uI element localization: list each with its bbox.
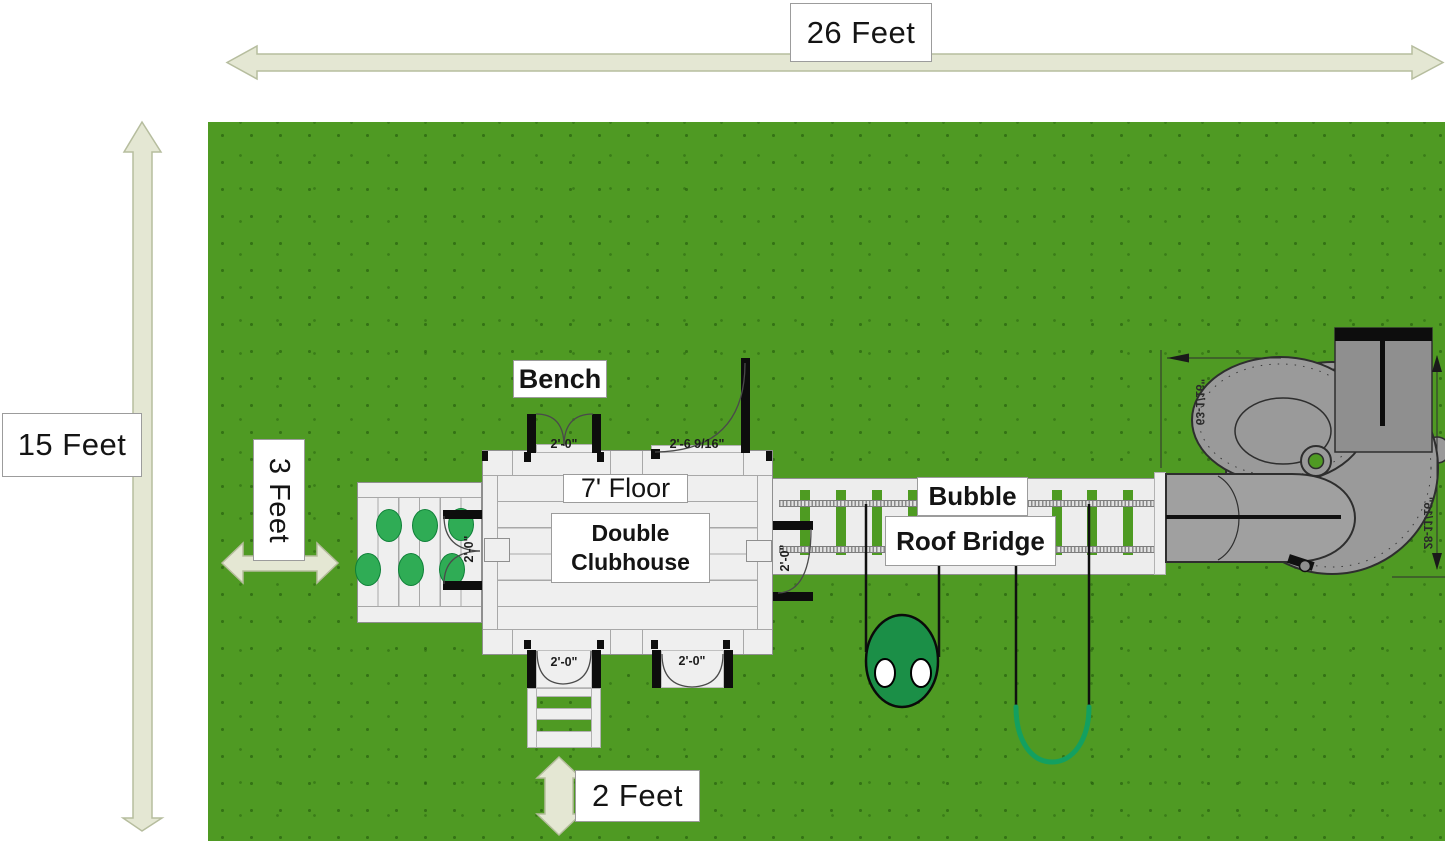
side-door-dim: 2'-0" <box>778 544 792 571</box>
slide-platform-divider <box>1380 341 1385 426</box>
slide-foot-cap <box>1300 561 1311 572</box>
height-dimension-label: 15 Feet <box>2 413 142 477</box>
width-dimension-label: 26 Feet <box>790 3 932 62</box>
bench-door-dim: 2'-0" <box>551 437 578 451</box>
slide-center-ring <box>1309 454 1324 469</box>
bench-label: Bench <box>513 360 607 398</box>
bottom-door-dim: 2'-0" <box>679 654 706 668</box>
bubble-hole <box>911 659 931 687</box>
slide-platform-edge <box>1335 328 1432 341</box>
plan-graphics: 2'-0" 2'-6 9/16" 2'-0" 2'-0" 2'-0" 2'-0"… <box>0 0 1445 844</box>
side-clearance-label: 3 Feet <box>253 439 305 561</box>
bridge-label-bottom: Roof Bridge <box>885 516 1056 566</box>
floor-label: 7' Floor <box>563 474 688 503</box>
bridge-label-top: Bubble <box>917 477 1028 516</box>
bottom-clearance-label: 2 Feet <box>575 770 700 822</box>
slide-depth-dim: 28-11/16" <box>1421 497 1435 549</box>
ladder-door-dim: 2'-0" <box>551 655 578 669</box>
playset-plan-diagram: 2'-0" 2'-6 9/16" 2'-0" 2'-0" 2'-0" 2'-0"… <box>0 0 1445 844</box>
bubble-hole <box>875 659 895 687</box>
belt-seat <box>1016 707 1089 762</box>
slide-width-dim: 63-1/16" <box>1193 379 1207 425</box>
clubhouse-label: Double Clubhouse <box>551 513 710 583</box>
playhouse-door-dim: 2'-6 9/16" <box>670 437 725 451</box>
climb-door-dim: 2'-0" <box>462 535 476 562</box>
spiral-tube-slide <box>1166 328 1445 574</box>
